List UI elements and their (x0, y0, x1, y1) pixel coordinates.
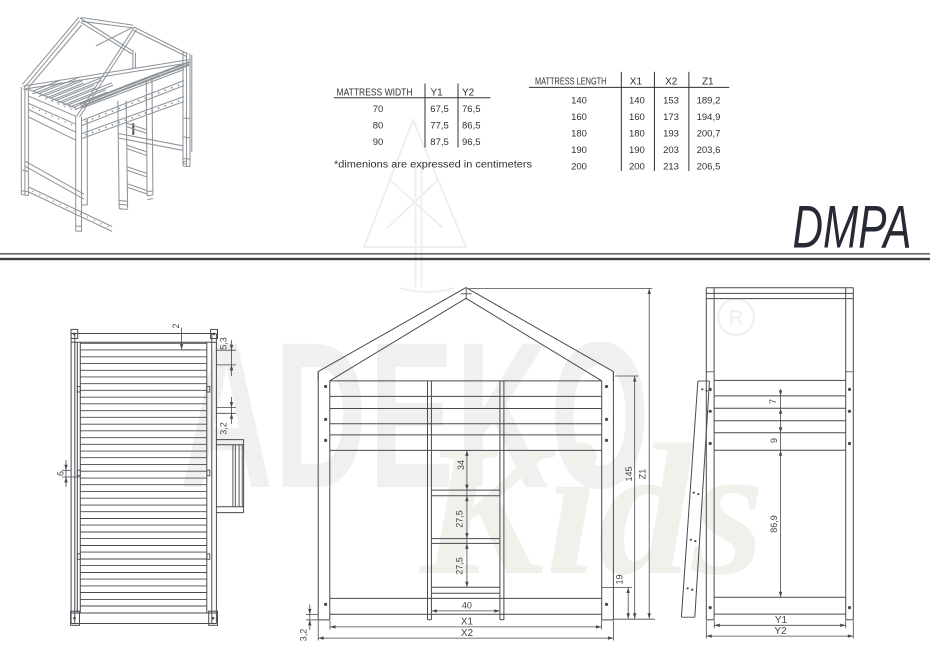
svg-text:213: 213 (663, 162, 679, 173)
svg-text:*dimenions are expressed in ce: *dimenions are expressed in centimeters (334, 160, 532, 171)
svg-text:203,6: 203,6 (697, 145, 721, 156)
svg-text:160: 160 (629, 112, 645, 123)
svg-text:X1: X1 (630, 77, 643, 88)
svg-text:87,5: 87,5 (430, 137, 449, 148)
svg-text:6: 6 (55, 471, 65, 476)
svg-text:140: 140 (629, 96, 645, 107)
svg-text:DMPA: DMPA (793, 194, 912, 261)
svg-text:Z1: Z1 (638, 469, 648, 480)
svg-text:96,5: 96,5 (462, 137, 481, 148)
svg-text:90: 90 (373, 137, 384, 148)
svg-text:80: 80 (373, 121, 384, 132)
svg-text:27,5: 27,5 (454, 557, 464, 575)
svg-text:5,3: 5,3 (218, 337, 228, 350)
svg-text:Y2: Y2 (462, 88, 475, 99)
svg-text:86,5: 86,5 (462, 121, 481, 132)
svg-text:Y1: Y1 (431, 88, 444, 99)
svg-text:Y1: Y1 (775, 615, 788, 626)
svg-text:2: 2 (171, 323, 181, 328)
svg-text:76,5: 76,5 (462, 104, 481, 115)
svg-text:153: 153 (663, 96, 679, 107)
svg-text:Z1: Z1 (702, 77, 714, 88)
svg-text:180: 180 (629, 129, 645, 140)
svg-text:3,2: 3,2 (299, 629, 309, 642)
svg-text:MATTRESS LENGTH: MATTRESS LENGTH (535, 77, 607, 88)
svg-text:200: 200 (629, 162, 645, 173)
svg-text:27,5: 27,5 (454, 510, 464, 528)
svg-text:145: 145 (624, 466, 634, 481)
svg-text:70: 70 (373, 104, 384, 115)
svg-text:X1: X1 (461, 617, 474, 628)
svg-text:206,5: 206,5 (697, 162, 721, 173)
svg-text:77,5: 77,5 (430, 121, 449, 132)
svg-text:160: 160 (571, 112, 587, 123)
svg-text:189,2: 189,2 (697, 96, 721, 107)
svg-text:3,2: 3,2 (218, 422, 228, 435)
svg-text:R: R (729, 307, 744, 329)
svg-text:MATTRESS WIDTH: MATTRESS WIDTH (337, 88, 413, 99)
svg-text:194,9: 194,9 (697, 112, 721, 123)
svg-text:140: 140 (571, 96, 587, 107)
svg-text:Kids: Kids (418, 405, 765, 614)
svg-text:7: 7 (768, 399, 778, 404)
svg-text:173: 173 (663, 112, 679, 123)
svg-text:Y2: Y2 (774, 626, 787, 637)
svg-text:180: 180 (571, 129, 587, 140)
svg-text:19: 19 (614, 574, 624, 584)
svg-text:34: 34 (456, 460, 466, 470)
svg-text:9: 9 (769, 438, 779, 443)
svg-text:X2: X2 (461, 628, 474, 639)
svg-text:X2: X2 (665, 77, 678, 88)
svg-text:86,9: 86,9 (769, 515, 779, 533)
svg-text:193: 193 (663, 129, 679, 140)
svg-text:203: 203 (663, 145, 679, 156)
svg-text:200,7: 200,7 (697, 129, 721, 140)
svg-text:67,5: 67,5 (430, 104, 449, 115)
svg-text:200: 200 (571, 162, 587, 173)
svg-text:190: 190 (629, 145, 645, 156)
svg-text:190: 190 (571, 145, 587, 156)
svg-text:40: 40 (462, 601, 472, 611)
